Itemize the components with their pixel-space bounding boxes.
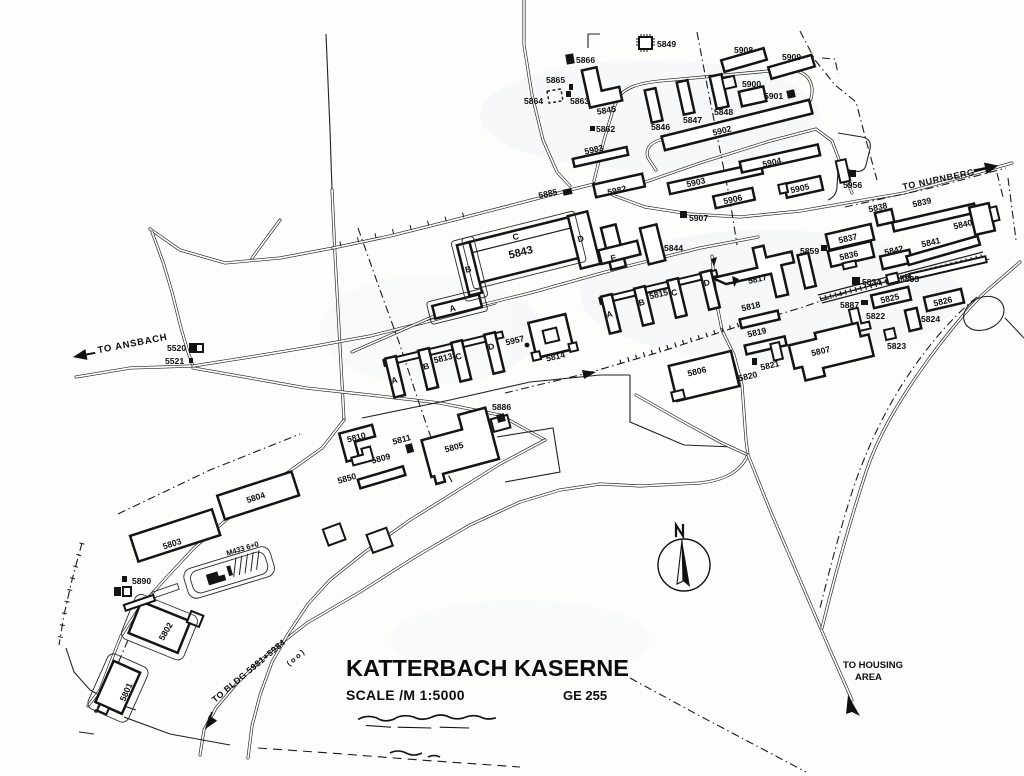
svg-text:5823: 5823: [887, 341, 906, 351]
svg-text:5866: 5866: [576, 55, 595, 65]
svg-text:TO HOUSING: TO HOUSING: [843, 660, 903, 671]
svg-text:5908: 5908: [734, 45, 753, 55]
svg-text:5834: 5834: [862, 277, 881, 287]
svg-text:5844: 5844: [664, 243, 683, 253]
svg-text:5848: 5848: [714, 107, 733, 117]
svg-text:5822: 5822: [866, 311, 885, 321]
svg-text:5862: 5862: [596, 124, 615, 134]
svg-text:5909: 5909: [782, 52, 801, 62]
svg-text:5900: 5900: [742, 79, 761, 89]
svg-text:5886: 5886: [492, 402, 511, 412]
svg-text:5835: 5835: [900, 274, 919, 284]
svg-text:KATTERBACH KASERNE: KATTERBACH KASERNE: [346, 655, 629, 681]
svg-text:5847: 5847: [683, 115, 702, 125]
svg-text:SCALE /M 1:5000: SCALE /M 1:5000: [346, 687, 465, 703]
svg-text:GE 255: GE 255: [563, 688, 607, 703]
svg-text:5890: 5890: [132, 576, 151, 586]
svg-text:5956: 5956: [843, 180, 862, 190]
svg-text:5865: 5865: [546, 75, 565, 85]
svg-text:5863: 5863: [570, 96, 589, 106]
svg-text:5824: 5824: [921, 314, 940, 324]
svg-text:5846: 5846: [651, 122, 670, 132]
svg-text:5849: 5849: [657, 39, 676, 49]
svg-text:5901: 5901: [764, 91, 783, 101]
svg-text:5907: 5907: [689, 213, 708, 223]
svg-text:5864: 5864: [524, 96, 543, 106]
svg-text:AREA: AREA: [855, 672, 882, 683]
svg-text:5521: 5521: [165, 356, 184, 366]
svg-text:5520: 5520: [167, 343, 186, 353]
